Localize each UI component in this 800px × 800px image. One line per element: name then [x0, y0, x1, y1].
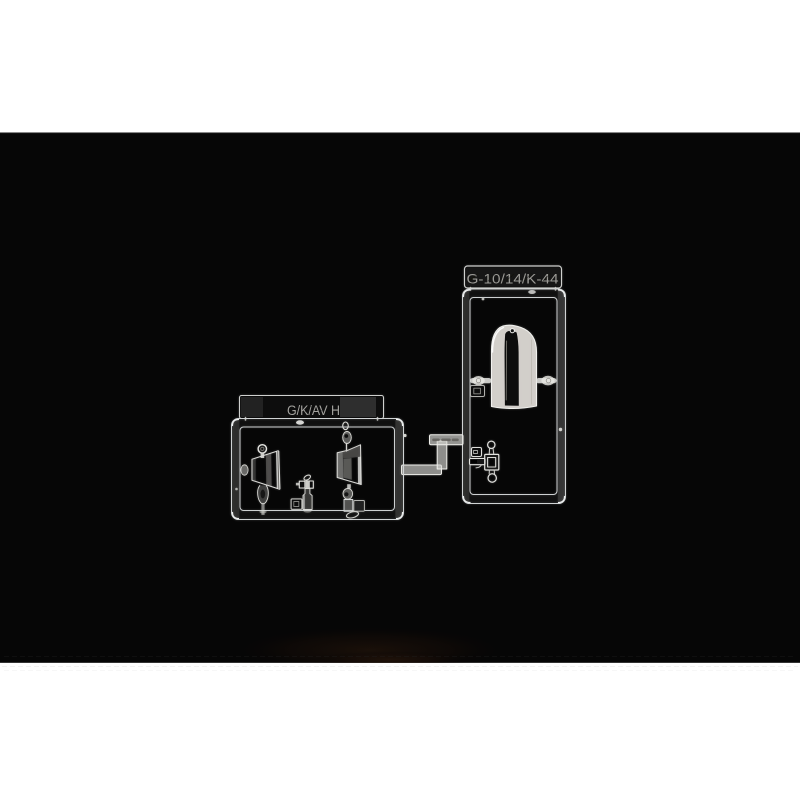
- svg-text:G/K/AV H: G/K/AV H: [287, 403, 340, 418]
- svg-text:G-10/14/K-44: G-10/14/K-44: [467, 271, 559, 287]
